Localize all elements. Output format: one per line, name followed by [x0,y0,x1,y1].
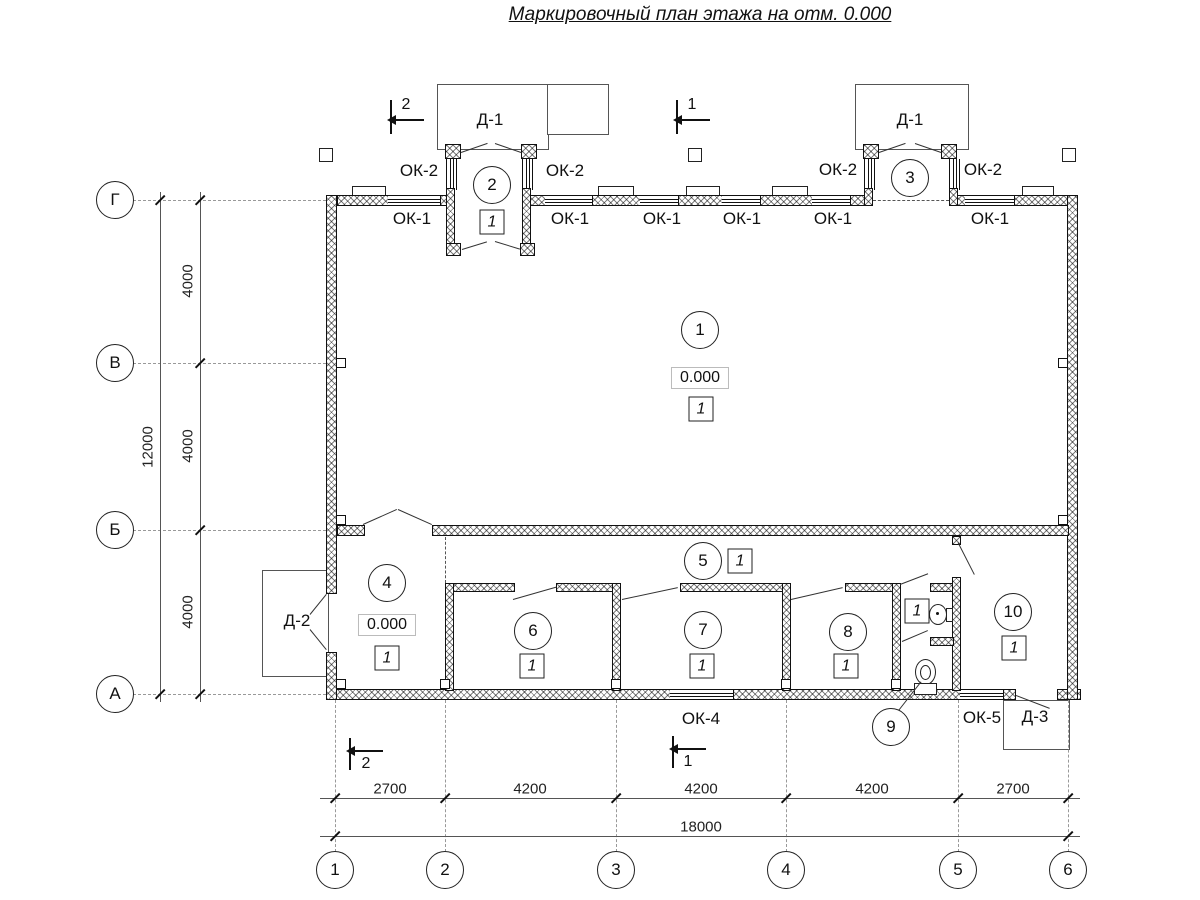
window-label-ok5: ОК-5 [963,708,1001,728]
opening-dashed-line [873,200,949,201]
dim-value: 4000 [180,595,197,628]
pilaster-stub [440,679,450,689]
door-leaf-washroom [900,573,928,585]
axis-line-5 [958,700,959,852]
window-label-ok1: ОК-1 [643,209,681,229]
partition-corridor [680,583,784,592]
column-marker [1062,148,1076,162]
wall-axis-b [432,525,1069,536]
pilaster-stub [1058,515,1068,525]
floor-mark-room4: 1 [375,646,400,671]
room-circle-room10: 10 [994,593,1032,631]
section-label: 2 [402,96,411,114]
axis-circle-3: 3 [597,851,635,889]
section-arrow [387,115,396,125]
vestibule-corner [520,243,535,256]
axis-circle-5: 5 [939,851,977,889]
wall-top [760,195,814,206]
axis-circle-2: 2 [426,851,464,889]
dim-line-bottom-segments [320,798,1080,799]
vestibule-corner [941,144,957,159]
vestibule-wall [949,188,958,206]
window-label-ok2: ОК-2 [964,160,1002,180]
door-leaf [398,509,432,525]
floor-plan-drawing: Маркировочный план этажа на отм. 0.000 [0,0,1200,900]
dim-value-total: 18000 [680,819,722,836]
dim-value: 4200 [513,781,546,798]
section-arrow [346,746,355,756]
dim-value: 4000 [180,429,197,462]
window-ok4 [670,689,733,700]
axis-line-a [133,694,326,695]
axis-circle-a: А [96,675,134,713]
window-ok5 [960,689,1003,700]
door-leaf [363,509,397,525]
partition-room8-wash [892,583,901,691]
door-leaf-room8 [791,587,843,600]
room-circle-room4: 4 [368,564,406,602]
pilaster-stub [336,358,346,368]
axis-circle-v: В [96,344,134,382]
window-ok1-2 [545,195,592,206]
dim-value: 4200 [855,781,888,798]
window-label-ok2: ОК-2 [819,160,857,180]
axis-circle-6: 6 [1049,851,1087,889]
window-label-ok4: ОК-4 [682,709,720,729]
pilaster-stub [336,679,346,689]
window-label-ok1: ОК-1 [814,209,852,229]
partition-corridor [845,583,894,592]
pilaster-stub [611,679,621,689]
window-ok1-1 [388,195,440,206]
section-arrow [669,744,678,754]
wall-left [326,195,337,594]
vestibule-corner [863,144,879,159]
axis-circle-1: 1 [316,851,354,889]
floor-mark-room7: 1 [690,654,715,679]
partition-room4-6 [445,583,454,691]
wall-top [678,195,724,206]
wall-bottom-pier [1003,689,1016,700]
axis-line-4 [786,700,787,852]
vestibule-wall [864,188,873,206]
wall-right [1067,195,1078,700]
door-label-d3: Д-3 [1022,707,1049,727]
axis-circle-g: Г [96,181,134,219]
window-ok1-4 [722,195,760,206]
dim-value-total: 12000 [140,426,157,468]
axis-circle-b: Б [96,511,134,549]
dim-line-left-total [160,192,161,702]
dim-value: 2700 [996,781,1029,798]
dim-value: 2700 [373,781,406,798]
floor-mark-vestibule-left: 1 [480,210,505,235]
axis-line-3 [616,700,617,852]
elevation-mark-hall: 0.000 [671,367,729,389]
dim-line-bottom-total [320,836,1080,837]
toilet-bowl-inner [920,665,931,680]
pilaster-stub [336,515,346,525]
window-label-ok1: ОК-1 [551,209,589,229]
room-circle-vestibule-right: 3 [891,159,929,197]
axis-line-2 [445,700,446,852]
partition-corridor [930,583,954,592]
floor-mark-room10: 1 [1002,636,1027,661]
pilaster-stub [1058,358,1068,368]
partition-room7-8 [782,583,791,691]
room-circle-vestibule-left: 2 [473,166,511,204]
vestibule-corner [445,144,461,159]
wall-top [337,195,390,206]
axis-circle-4: 4 [767,851,805,889]
door-leaf-room6 [513,587,557,600]
floor-mark-corridor: 1 [728,549,753,574]
window-label-ok1: ОК-1 [393,209,431,229]
room-circle-wc: 9 [872,708,910,746]
room-circle-hall: 1 [681,311,719,349]
axis-line-b [133,530,326,531]
vestibule-corner [521,144,537,159]
room-circle-corridor: 5 [684,542,722,580]
column-marker [688,148,702,162]
partition-wash-wc [930,637,954,646]
door-label-d1: Д-1 [477,110,504,130]
dim-line-left-segments [200,192,201,702]
section-label: 1 [688,96,697,114]
door-label-d2: Д-2 [284,611,311,631]
wall-left [326,652,337,700]
dim-value: 4000 [180,264,197,297]
partition-corridor [453,583,515,592]
column-marker [319,148,333,162]
floor-mark-room8: 1 [834,654,859,679]
room-circle-room8: 8 [829,613,867,651]
window-label-ok2: ОК-2 [546,161,584,181]
door-leaf-wc [902,630,928,642]
window-ok2-3 [864,159,875,190]
door-leaf-room10 [958,542,975,575]
partition-wash-room10 [952,577,961,691]
zone-boundary-dashed [445,537,446,583]
window-ok1-3 [640,195,678,206]
porch-left-steps [547,84,609,135]
axis-line-6 [1068,700,1069,852]
room-circle-room6: 6 [514,612,552,650]
window-label-ok2: ОК-2 [400,161,438,181]
window-ok2-2 [522,159,533,190]
pilaster-stub [781,679,791,689]
wall-top [1014,195,1069,206]
window-ok1-5 [812,195,850,206]
section-label: 1 [684,753,693,771]
door-leaf [495,241,520,250]
wall-top [592,195,642,206]
sink-bracket [946,608,953,622]
door-leaf [462,241,487,250]
drawing-title: Маркировочный план этажа на отм. 0.000 [380,4,1020,26]
partition-corridor [556,583,614,592]
floor-mark-washroom: 1 [905,599,930,624]
window-ok2-4 [949,159,960,190]
pilaster-stub [891,679,901,689]
axis-line-v [133,363,326,364]
window-ok2-1 [446,159,457,190]
sink-drain [936,612,939,615]
vestibule-corner [446,243,461,256]
floor-mark-hall: 1 [689,397,714,422]
window-label-ok1: ОК-1 [971,209,1009,229]
axis-line-1 [335,700,336,852]
elevation-mark-room4: 0.000 [358,614,416,636]
room-circle-room7: 7 [684,611,722,649]
floor-mark-room6: 1 [520,654,545,679]
dim-value: 4200 [684,781,717,798]
section-label: 2 [362,755,371,773]
window-ok1-6 [965,195,1014,206]
axis-line-g [133,200,326,201]
door-leaf-room7 [622,587,678,600]
partition-room6-7 [612,583,621,691]
wall-axis-b [337,525,365,536]
window-label-ok1: ОК-1 [723,209,761,229]
section-arrow [673,115,682,125]
door-label-d1: Д-1 [897,110,924,130]
